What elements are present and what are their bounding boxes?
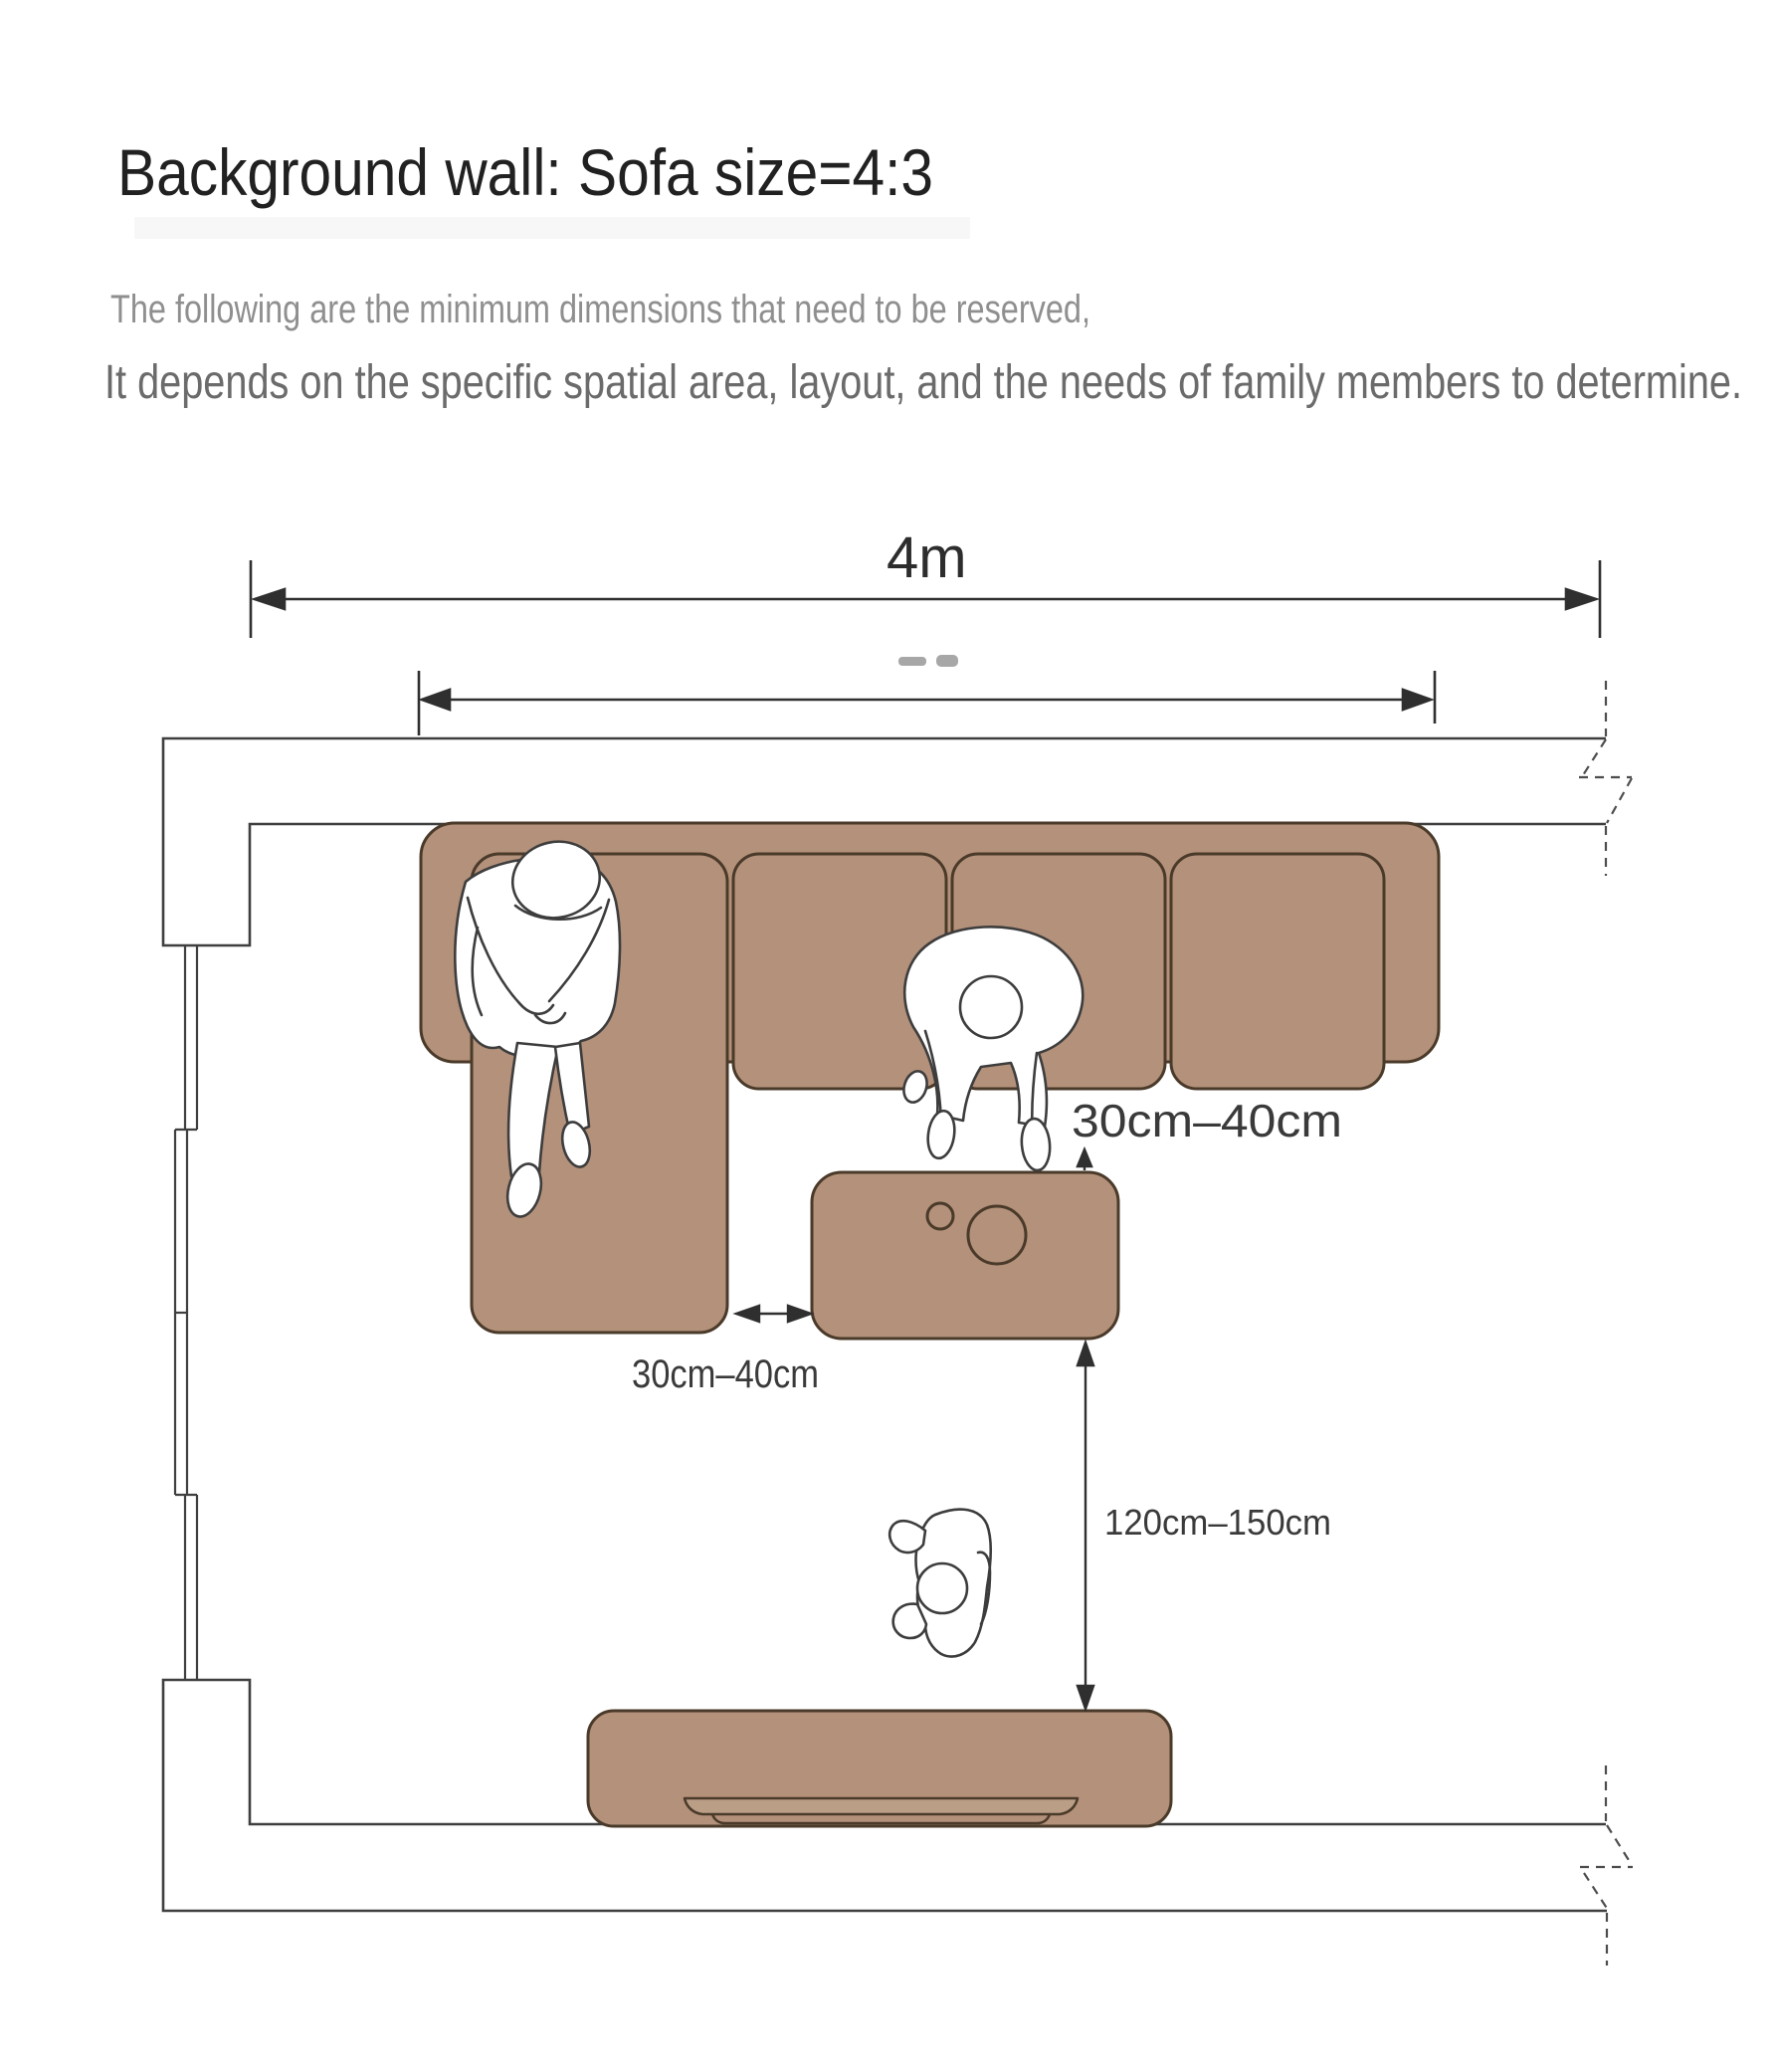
svg-text:The following are the minimum: The following are the minimum dimensions…	[110, 288, 1090, 331]
svg-text:4m: 4m	[887, 525, 967, 590]
svg-text:Background wall: Sofa size=4:3: Background wall: Sofa size=4:3	[117, 135, 933, 209]
svg-text:30cm–40cm: 30cm–40cm	[632, 1352, 819, 1396]
svg-text:120cm–150cm: 120cm–150cm	[1104, 1502, 1331, 1543]
svg-text:30cm–40cm: 30cm–40cm	[1072, 1095, 1342, 1146]
svg-text:It depends on the specific spa: It depends on the specific spatial area,…	[104, 356, 1742, 409]
